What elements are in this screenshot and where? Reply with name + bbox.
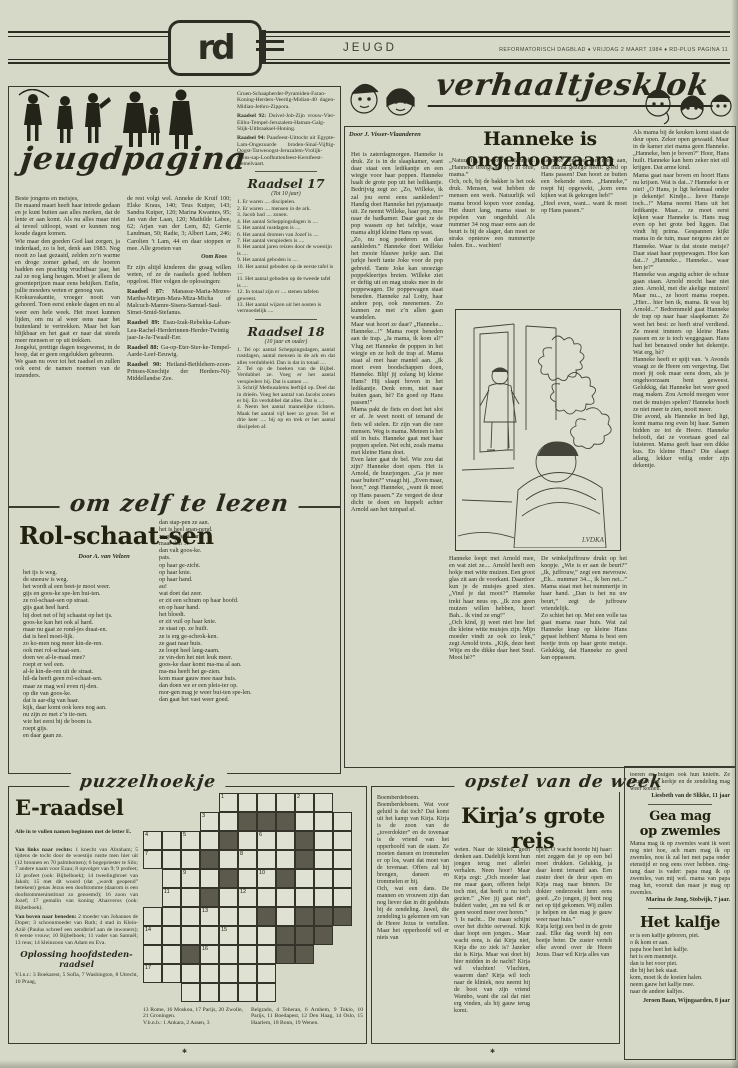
- crossword-cell: [257, 812, 276, 831]
- jeugd-names-column: de rest volgt wel. Anneke de Kruif 100; …: [127, 195, 231, 501]
- kirja-column-2: weten. Naar de kliniek, geen denken aan.…: [454, 847, 530, 1035]
- crossword-cell: [276, 888, 295, 907]
- solutions-note: Er zijn altijd kinderen die graag willen…: [127, 264, 231, 285]
- crossword-cell: [238, 926, 257, 945]
- crossword-cell: [143, 907, 162, 926]
- raadsel17-items: 1. Er waren .... discipelen. 2. Er waren…: [237, 199, 335, 314]
- crossword-cell: [257, 888, 276, 907]
- crossword-cell: [314, 888, 333, 907]
- crossword-cell: [143, 945, 162, 964]
- crossword-cell: [238, 869, 257, 888]
- crossword-cell: 4: [143, 831, 162, 850]
- masthead-rule: [8, 36, 730, 37]
- crossword-cell: [162, 831, 181, 850]
- jeugdpagina-section: jeugdpagina Beste jongens en meisjes, De…: [8, 86, 341, 508]
- opstel-section: Boemberdeboem. Boemberdeboem. Wat voor g…: [371, 786, 620, 1044]
- crossword-cell: [200, 850, 219, 869]
- page-edge-right: [731, 0, 738, 1068]
- crossword-cell: [314, 831, 333, 850]
- footer-mark: ✱: [490, 1048, 495, 1055]
- oom-koos-signature: Oom Koos: [127, 254, 227, 261]
- crossword-cell: [314, 907, 333, 926]
- divider: [255, 171, 318, 172]
- crossword-cell: [314, 793, 333, 812]
- crossword-cell: [276, 926, 295, 945]
- story-column-2-upper: „Natuurlijk,” belooft Hanneke. „Hanneke …: [449, 157, 535, 305]
- crossword-cell: [162, 926, 181, 945]
- crossword-cell: [162, 907, 181, 926]
- raadsel17-title: Raadsel 17: [237, 176, 335, 191]
- crossword-cell: 5: [181, 831, 200, 850]
- puzzle-script-title: puzzelhoekje: [69, 772, 228, 792]
- raadsel18-title: Raadsel 18: [237, 324, 335, 339]
- puzzle-script-banner: puzzelhoekje: [70, 772, 226, 792]
- answer-lead: Raadsel 88:: [127, 344, 159, 351]
- crossword-cell: 9: [181, 869, 200, 888]
- crossword-cell: [295, 831, 314, 850]
- crossword-cell: [333, 812, 352, 831]
- crossword-cell: [238, 983, 257, 1002]
- crossword-cell: [314, 812, 333, 831]
- footer-mark: ✱: [182, 1048, 187, 1055]
- crossword-cell: 2: [295, 793, 314, 812]
- raadsel-column: Gruen-Schaapherder-Pyramiden-Farao-Konin…: [237, 91, 335, 503]
- crossword-cell: [314, 869, 333, 888]
- crossword-cell: [200, 869, 219, 888]
- crossword-cell: 7: [143, 850, 162, 869]
- crossword-cell: [295, 945, 314, 964]
- logo-cross-mark: [256, 48, 284, 51]
- crossword-cell: 17: [143, 964, 162, 983]
- crossword-cell: [276, 850, 295, 869]
- raadsel18-subtitle: (10 jaar en ouder): [237, 339, 335, 345]
- crossword-cell: [276, 812, 295, 831]
- crossword-cell: [219, 869, 238, 888]
- puzzle-section: E-raadsel Alle in te vullen namen beginn…: [8, 786, 367, 1044]
- masthead-rule: [8, 62, 730, 64]
- crossword-cell: [333, 869, 352, 888]
- crossword-cell: [295, 907, 314, 926]
- poem-column-2: dan stap-pen ze aan. het is heel span-ne…: [159, 519, 279, 765]
- raadsel18-items: 1. Tel op: aantal Scheppingsdagen, aanta…: [237, 347, 335, 430]
- crossword-cell: [238, 831, 257, 850]
- gea-headline: Gea mag op zwemles: [630, 809, 730, 839]
- rolschaatsen-byline: Door A. van Velzen: [39, 553, 169, 560]
- crossword-cell: 12: [238, 888, 257, 907]
- crossword-cell: [238, 812, 257, 831]
- answer-lead: Raadsel 89:: [127, 319, 160, 326]
- crossword-cell: 15: [219, 926, 238, 945]
- crossword-grid: 1234567891011121314151617: [143, 793, 352, 1002]
- crossword-cell: [333, 850, 352, 869]
- crossword-cell: [295, 812, 314, 831]
- raadsel17-subtitle: (Tot 10 jaar): [237, 191, 335, 197]
- crossword-cell: [181, 945, 200, 964]
- answer-lead: Raadsel 94:: [237, 135, 265, 141]
- jeroen-signature: Jeroen Baan, Wijngaarden, 8 jaar: [630, 998, 730, 1005]
- logo-cross-mark: [262, 30, 266, 64]
- crossword-cell: [219, 831, 238, 850]
- answer-lead: Raadsel 92:: [237, 113, 266, 119]
- oplossing-part-b: 13 Rome, 16 Moskou, 17 Parijs, 20 Zwolle…: [143, 1007, 243, 1039]
- crossword-cell: [162, 945, 181, 964]
- eraadsel-clues: Van links naar rechts: 1 knecht van Abra…: [15, 847, 138, 1041]
- kirja-headline: Kirja’s grote reis: [452, 803, 614, 853]
- crossword-cell: [200, 964, 219, 983]
- crossword-cell: [200, 926, 219, 945]
- crossword-cell: [333, 831, 352, 850]
- across-label: Van links naar rechts:: [15, 847, 72, 853]
- crossword-cell: [276, 793, 295, 812]
- crossword-cell: [238, 907, 257, 926]
- divider: [255, 319, 318, 320]
- rd-logo-text: rd: [197, 28, 232, 68]
- lezen-section: Rol-schaat-sen Door A. van Velzen het ij…: [8, 506, 341, 774]
- masthead-rule: [8, 59, 730, 60]
- crossword-cell: [314, 926, 333, 945]
- prize-names-text: de rest volgt wel. Anneke de Kruif 100; …: [127, 195, 231, 252]
- crossword-cell: [219, 888, 238, 907]
- crossword-cell: 8: [238, 850, 257, 869]
- crossword-cell: [333, 888, 352, 907]
- liesbeth-signature: Liesbeth van de Slikke, 11 jaar: [630, 793, 730, 800]
- edition-meta: REFORMATORISCH DAGBLAD ♦ VRIJDAG 2 MAART…: [499, 47, 728, 53]
- marina-signature: Marina de Jong, Stolwijk, 7 jaar.: [630, 897, 730, 904]
- crossword-cell: [257, 907, 276, 926]
- kirja-column-1: Boemberdeboem. Boemberdeboem. Wat voor g…: [377, 795, 449, 1037]
- oplossing-title: Oplossing hoofdsteden-raadsel: [15, 950, 138, 970]
- crossword-cell: [181, 926, 200, 945]
- page-edge-bottom: [0, 1060, 738, 1068]
- crossword-cell: [257, 945, 276, 964]
- divider: [648, 804, 712, 805]
- crossword-cell: [181, 907, 200, 926]
- crossword-cell: [219, 907, 238, 926]
- story-illustration: LVDKA: [455, 309, 621, 551]
- crossword-cell: [238, 945, 257, 964]
- crossword-cell: 16: [200, 945, 219, 964]
- kirja-column-3: open. O wacht hoorde hij haar: niet zegg…: [536, 847, 612, 1035]
- crossword-cell: [257, 850, 276, 869]
- across-clues: 1 knecht van Abraham; 5 tijdens de tocht…: [15, 847, 138, 911]
- story-column-3-upper: Hanneke denkt er niet meer aan, dat mama…: [541, 157, 627, 305]
- kalfje-headline: Het kalfje: [630, 913, 730, 931]
- essays-column: toeren en buigen ook hun knieën. Ze bouw…: [624, 766, 736, 1060]
- kirja-ending-text: toeren en buigen ook hun knieën. Ze bouw…: [630, 772, 730, 793]
- story-illustration-drawing: LVDKA: [456, 310, 618, 548]
- story-byline: Door J. Visser-Vlaanderen: [349, 131, 445, 138]
- crossword-cell: [162, 869, 181, 888]
- story-column-3-lower: De winkeljuffrouw drukt op het knopje. „…: [541, 555, 627, 759]
- section-title: JEUGD: [300, 42, 440, 54]
- answer-lead: Raadsel 90:: [127, 361, 161, 368]
- storyclock-faces-left-illustration: [346, 72, 422, 124]
- eraadsel-headline: E-raadsel: [15, 795, 124, 820]
- crossword-cell: [276, 945, 295, 964]
- crossword-cell: [200, 983, 219, 1002]
- masthead-rule: [8, 31, 730, 33]
- crossword-cell: [200, 831, 219, 850]
- storyclock-faces-right-illustration: [642, 80, 734, 126]
- crossword-cell: [181, 850, 200, 869]
- crossword-cell: [257, 793, 276, 812]
- crossword-cell: [276, 907, 295, 926]
- answer-lead: Raadsel 87:: [127, 288, 164, 295]
- crossword-cell: [200, 888, 219, 907]
- crossword-cell: [238, 793, 257, 812]
- crossword-cell: [333, 907, 352, 926]
- lezen-script-title: om zelf te lezen: [58, 490, 300, 517]
- divider: [648, 908, 712, 909]
- crossword-cell: [295, 850, 314, 869]
- crossword-cell: [162, 850, 181, 869]
- crossword-cell: [162, 964, 181, 983]
- crossword-cell: 3: [200, 812, 219, 831]
- logo-cross-mark: [256, 40, 284, 43]
- illustrator-signature: LVDKA: [581, 536, 605, 544]
- crossword-cell: 13: [200, 907, 219, 926]
- gea-body: Mama mag ik op zwemles want ik weet nog …: [630, 841, 730, 897]
- crossword-cell: [295, 926, 314, 945]
- crossword-cell: [276, 869, 295, 888]
- crossword-cell: [219, 964, 238, 983]
- crossword-cell: [181, 964, 200, 983]
- crossword-cell: 1: [219, 793, 238, 812]
- crossword-cell: [238, 964, 257, 983]
- crossword-cell: [257, 983, 276, 1002]
- crossword-cell: [295, 869, 314, 888]
- jeugdpagina-script-title: jeugdpagina: [19, 141, 249, 177]
- crossword-cell: [219, 850, 238, 869]
- down-label: Van boven naar beneden:: [15, 914, 76, 920]
- crossword-cell: 14: [143, 926, 162, 945]
- story-column-4: Als mama bij de keuken komt staat de deu…: [633, 129, 729, 761]
- crossword-cell: [181, 983, 200, 1002]
- story-section: Door J. Visser-Vlaanderen Hanneke is ong…: [344, 126, 736, 768]
- story-column-1: Het is zaterdagmorgen. Hanneke is druk. …: [351, 151, 443, 759]
- story-column-2-lower: Hanneke loopt met Arnold mee, en wat zie…: [449, 555, 535, 759]
- crossword-cell: [181, 888, 200, 907]
- crossword-cell: [257, 926, 276, 945]
- oplossing-part-c: Belgrado, 4 Teheran, 6 Arnhem, 9 Tokio, …: [251, 1007, 363, 1039]
- oplossing-part-a: V.l.n.r.: 3 Boekarest, 5 Sofia, 7 Washin…: [15, 972, 138, 985]
- crossword-cell: [219, 945, 238, 964]
- crossword-cell: [257, 964, 276, 983]
- rd-logo: rd: [168, 20, 262, 76]
- answers-continuation: Gruen-Schaapherder-Pyramiden-Farao-Konin…: [237, 91, 335, 110]
- kalfje-poem: er is een kalfje geboren, piet. o ik kom…: [630, 933, 730, 996]
- crossword-cell: [276, 831, 295, 850]
- poem-column-1: het ijs is weg. de sneeuw is weg. het wo…: [23, 569, 148, 765]
- jeugd-intro-column: Beste jongens en meisjes, De maand maart…: [15, 195, 120, 501]
- crossword-cell: [295, 888, 314, 907]
- crossword-cell: [219, 812, 238, 831]
- crossword-cell: 10: [257, 869, 276, 888]
- lezen-script-banner: om zelf te lezen: [60, 490, 299, 517]
- crossword-cell: 11: [162, 888, 181, 907]
- eraadsel-intro: Alle in te vullen namen beginnen met de …: [15, 829, 137, 835]
- crossword-cell: [314, 850, 333, 869]
- crossword-cell: [219, 983, 238, 1002]
- crossword-cell: 6: [257, 831, 276, 850]
